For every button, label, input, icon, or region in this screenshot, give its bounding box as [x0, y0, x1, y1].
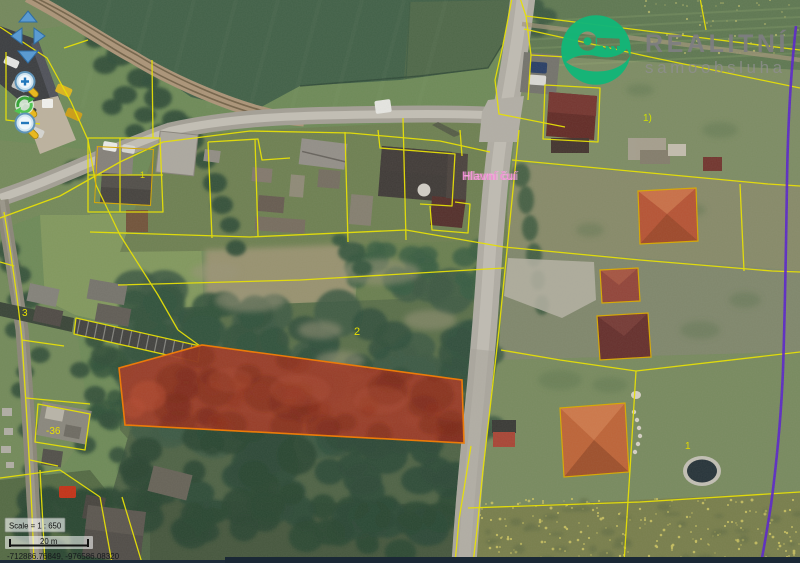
svg-text:20 m: 20 m	[40, 537, 57, 546]
svg-text:Hlavní čuí: Hlavní čuí	[464, 171, 519, 183]
svg-text:-36: -36	[46, 426, 61, 437]
svg-text:3: 3	[22, 308, 28, 319]
svg-text:-712886.76849, -976586.08320: -712886.76849, -976586.08320	[7, 552, 120, 561]
svg-text:1): 1)	[643, 113, 652, 124]
svg-text:1: 1	[685, 441, 691, 452]
svg-text:samoobsluha: samoobsluha	[645, 58, 786, 77]
svg-text:REALITNÍ: REALITNÍ	[645, 29, 789, 58]
svg-text:2: 2	[354, 326, 360, 338]
svg-text:1: 1	[140, 170, 145, 180]
svg-text:Scale = 1 : 650: Scale = 1 : 650	[9, 522, 62, 531]
